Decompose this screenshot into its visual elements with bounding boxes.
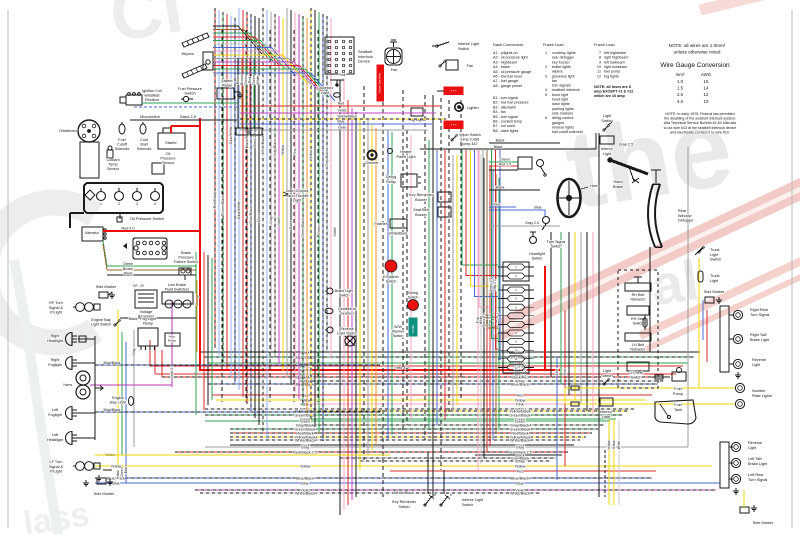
svg-text:Gray: Gray	[516, 445, 524, 449]
svg-text:A2 - oil pressure light: A2 - oil pressure light	[493, 56, 528, 60]
svg-text:Right Tail/: Right Tail/	[750, 333, 768, 337]
svg-text:Green: Green	[317, 225, 321, 235]
svg-text:White/Black: White/Black	[510, 491, 530, 495]
svg-text:Wipers: Wipers	[182, 51, 194, 56]
svg-text:Dash Ground: Dash Ground	[286, 189, 309, 193]
svg-text:Solenoid: Solenoid	[137, 147, 152, 151]
svg-text:Lighter: Lighter	[467, 105, 480, 110]
svg-text:Turn Signal: Turn Signal	[748, 478, 767, 482]
svg-text:Pump: Pump	[673, 392, 683, 396]
svg-text:Pink: Pink	[293, 148, 297, 155]
svg-text:Blue/White: Blue/White	[229, 126, 233, 143]
svg-text:Fan: Fan	[391, 67, 398, 72]
svg-text:14: 14	[704, 86, 709, 91]
svg-text:Brake Light: Brake Light	[335, 289, 354, 293]
svg-text:right highbeam: right highbeam	[604, 56, 628, 60]
svg-text:Blue: Blue	[124, 467, 128, 474]
svg-text:1.5: 1.5	[677, 86, 684, 91]
svg-text:courtesy lights: courtesy lights	[552, 51, 576, 55]
svg-text:Green/Black: Green/Black	[221, 195, 225, 215]
svg-text:Gray: Gray	[269, 216, 273, 224]
svg-text:6: 6	[545, 116, 547, 120]
svg-text:Switch: Switch	[184, 92, 195, 96]
svg-text:parking lights: parking lights	[552, 107, 574, 111]
svg-text:Microswitch: Microswitch	[140, 115, 160, 119]
svg-text:Switch: Switch	[386, 280, 397, 284]
svg-text:Yellow: Yellow	[607, 440, 611, 450]
svg-text:Black: Black	[496, 139, 505, 143]
svg-text:A6 - low fuel level: A6 - low fuel level	[493, 75, 522, 79]
svg-text:Interior: Interior	[600, 410, 613, 414]
svg-text:12: 12	[704, 92, 709, 97]
svg-text:Relay: Relay	[386, 180, 396, 184]
svg-text:Light: Light	[752, 363, 761, 367]
svg-text:Flasher: Flasher	[374, 222, 387, 226]
svg-text:Side Marker: Side Marker	[96, 285, 117, 289]
svg-text:Defog: Defog	[386, 175, 396, 179]
svg-text:Light: Light	[602, 415, 611, 419]
svg-text:Blue/White: Blue/White	[237, 201, 241, 218]
svg-text:Blue: Blue	[534, 206, 541, 210]
svg-text:Switch: Switch	[393, 334, 404, 338]
svg-text:Sensor: Sensor	[162, 161, 175, 165]
svg-text:Headlight: Headlight	[47, 339, 64, 343]
svg-text:which are 16 amp: which are 16 amp	[593, 94, 625, 98]
svg-text:Horns: Horns	[63, 383, 72, 387]
svg-text:Interior Light: Interior Light	[462, 498, 484, 502]
svg-text:Yellow: Yellow	[300, 464, 311, 468]
svg-text:Black: Black	[494, 145, 503, 149]
svg-text:Alfa Technical Service Bulleti: Alfa Technical Service Bulletin 61-62 in…	[664, 121, 737, 125]
svg-text:AWG: AWG	[701, 72, 712, 77]
svg-text:Distributor: Distributor	[59, 128, 77, 133]
svg-text:2.5: 2.5	[677, 92, 684, 97]
svg-text:Cutoff: Cutoff	[117, 143, 128, 147]
svg-text:Brake Light: Brake Light	[750, 338, 770, 342]
svg-text:Relay: Relay	[222, 83, 232, 88]
svg-text:Light: Light	[603, 152, 612, 156]
svg-text:A4 - brake: A4 - brake	[493, 65, 510, 69]
svg-text:jump 3&7: jump 3&7	[461, 142, 478, 146]
svg-text:Gray 2.5: Gray 2.5	[619, 143, 634, 147]
svg-text:E/Flasher: E/Flasher	[383, 275, 400, 279]
svg-text:Horn: Horn	[590, 183, 598, 188]
svg-text:Wire Gauge Conversion: Wire Gauge Conversion	[660, 62, 730, 69]
svg-text:Fuse# Load: Fuse# Load	[594, 42, 615, 47]
svg-text:Glovebox: Glovebox	[317, 86, 333, 90]
svg-text:Tank: Tank	[674, 408, 682, 412]
svg-text:Blue/Black: Blue/Black	[511, 382, 529, 386]
svg-text:al: al	[647, 248, 703, 318]
svg-text:Engine: Engine	[112, 396, 124, 400]
svg-text:Bay Light: Bay Light	[110, 401, 127, 405]
svg-text:Light: Light	[293, 199, 302, 203]
svg-text:defog control: defog control	[552, 116, 574, 120]
svg-text:Dimmer: Dimmer	[365, 161, 379, 165]
svg-text:turn signals: turn signals	[552, 84, 571, 88]
svg-text:Light: Light	[748, 446, 757, 450]
svg-text:Side Marker: Side Marker	[94, 492, 115, 496]
svg-text:7: 7	[599, 51, 601, 55]
svg-text:Switch: Switch	[398, 505, 409, 509]
svg-text:Brake: Brake	[613, 185, 623, 189]
svg-text:Red: Red	[517, 393, 524, 397]
svg-text:Black: Black	[496, 186, 505, 190]
svg-text:Gray/Black: Gray/Black	[273, 139, 277, 157]
svg-text:Light: Light	[603, 114, 612, 118]
svg-text:Switch: Switch	[601, 119, 612, 123]
svg-text:Blue: Blue	[493, 203, 500, 207]
svg-text:the disabling of the seatbelt: the disabling of the seatbelt interlock …	[664, 117, 736, 121]
svg-text:Dash Connectors: Dash Connectors	[493, 42, 523, 47]
svg-text:A3 - highbeam: A3 - highbeam	[493, 60, 517, 64]
svg-text:Pressure: Pressure	[178, 256, 193, 260]
svg-text:Yellow: Yellow	[281, 144, 285, 155]
svg-text:Green/Black: Green/Black	[301, 218, 305, 238]
svg-text:Retractor: Retractor	[630, 348, 646, 352]
svg-text:3: 3	[545, 74, 547, 78]
svg-text:Black 2.5: Black 2.5	[180, 115, 196, 119]
svg-text:Red: Red	[563, 369, 567, 375]
svg-text:Heater: Heater	[400, 150, 412, 154]
svg-text:Right: Right	[51, 334, 61, 338]
svg-text:reverse lights: reverse lights	[552, 125, 574, 129]
svg-text:Black: Black	[289, 220, 293, 229]
svg-text:fuel pump: fuel pump	[604, 70, 620, 74]
svg-text:W/W: W/W	[394, 325, 403, 329]
svg-text:White: White	[515, 459, 525, 463]
svg-text:Seat Belt: Seat Belt	[413, 208, 429, 212]
svg-text:Window: Window	[678, 214, 692, 218]
svg-text:Plate Lights: Plate Lights	[752, 394, 772, 398]
svg-text:B6 - coolant temp: B6 - coolant temp	[493, 120, 522, 124]
svg-text:Switch: Switch	[408, 296, 419, 300]
svg-text:White/Black: White/Black	[389, 232, 408, 236]
svg-text:Washer: Washer	[392, 330, 405, 334]
svg-text:Throttle: Throttle	[412, 324, 415, 333]
svg-text:Turn Signal: Turn Signal	[750, 313, 769, 317]
svg-text:4: 4	[545, 88, 547, 92]
svg-text:Gray: Gray	[301, 445, 309, 449]
svg-text:to cut wire #13 at the seatbel: to cut wire #13 at the seatbelt interloc…	[664, 126, 737, 130]
svg-text:Switch: Switch	[631, 376, 642, 380]
svg-text:Light: Light	[710, 279, 719, 283]
svg-text:Side Marker: Side Marker	[704, 290, 725, 294]
svg-text:Pink: Pink	[301, 402, 308, 406]
svg-text:Green: Green	[500, 158, 510, 162]
svg-text:seatbelt interlock: seatbelt interlock	[552, 88, 580, 92]
svg-text:Blue/Black: Blue/Black	[296, 476, 314, 480]
svg-text:Key Reminder: Key Reminder	[409, 193, 434, 197]
svg-text:2: 2	[118, 202, 120, 206]
svg-text:w/Ballast: w/Ballast	[144, 94, 160, 98]
svg-text:9: 9	[599, 60, 601, 64]
svg-text:Relay: Relay	[168, 339, 176, 343]
svg-text:Panel Light: Panel Light	[397, 155, 417, 159]
svg-text:Light Switch: Light Switch	[337, 332, 357, 336]
svg-text:Green: Green	[123, 262, 133, 266]
svg-text:Gearbox: Gearbox	[340, 312, 354, 316]
svg-text:Right Rear: Right Rear	[750, 308, 769, 312]
svg-text:Sensor: Sensor	[107, 167, 120, 171]
svg-text:and electrically connect it to: and electrically connect it to wire #10.	[670, 130, 730, 134]
svg-text:trunk light: trunk light	[552, 93, 568, 97]
svg-text:rear defogger: rear defogger	[552, 56, 575, 60]
svg-text:Buzzer: Buzzer	[415, 213, 428, 217]
svg-text:Light: Light	[710, 253, 719, 257]
svg-text:White: White	[256, 75, 260, 84]
svg-text:unless otherwise noted: unless otherwise noted	[674, 50, 721, 55]
svg-text:A7 - fuel gauge: A7 - fuel gauge	[493, 79, 518, 83]
svg-text:Switch: Switch	[633, 322, 644, 326]
svg-text:Yellow/Black: Yellow/Black	[337, 115, 357, 119]
svg-text:Fog Light: Fog Light	[140, 317, 157, 321]
svg-text:b: b	[450, 493, 452, 497]
svg-text:Interior: Interior	[601, 147, 614, 151]
svg-text:Retractor: Retractor	[630, 298, 646, 302]
svg-text:Reverse: Reverse	[752, 358, 766, 362]
svg-text:NOTE: all fuses are 8: NOTE: all fuses are 8	[594, 85, 631, 89]
svg-text:Blue: Blue	[301, 481, 309, 485]
svg-text:hood light: hood light	[552, 98, 568, 102]
svg-text:Switch: Switch	[710, 258, 721, 262]
svg-text:White/Black: White/Black	[295, 491, 315, 495]
svg-text:Oil: Oil	[166, 152, 171, 156]
svg-text:Yellow: Yellow	[515, 464, 526, 468]
svg-text:Blue/Black: Blue/Black	[104, 408, 121, 412]
svg-text:Light: Light	[603, 369, 612, 373]
svg-text:Light Switch: Light Switch	[91, 323, 111, 327]
svg-text:A8 - gauge power: A8 - gauge power	[493, 84, 523, 88]
svg-text:2: 2	[545, 65, 547, 69]
svg-text:Pink: Pink	[516, 402, 523, 406]
svg-text:Black: Black	[300, 350, 309, 354]
svg-text:Fasten Seat Belts: Fasten Seat Belts	[377, 72, 381, 93]
svg-text:Defog: Defog	[408, 291, 418, 295]
svg-text:Alternator: Alternator	[85, 231, 100, 235]
svg-text:Brake Light: Brake Light	[748, 462, 768, 466]
svg-text:Coolant: Coolant	[106, 158, 120, 162]
svg-text:b: b	[434, 493, 436, 497]
svg-text:Pink: Pink	[339, 73, 346, 77]
svg-text:fog lights: fog lights	[604, 74, 619, 78]
svg-text:brake lights: brake lights	[552, 65, 571, 69]
svg-text:right lowbeam: right lowbeam	[604, 65, 627, 69]
svg-text:fuel cutoff solenoid: fuel cutoff solenoid	[552, 130, 583, 134]
svg-text:B7 - not used: B7 - not used	[493, 124, 515, 128]
svg-text:Light: Light	[321, 91, 330, 95]
svg-text:gauges: gauges	[552, 121, 564, 125]
svg-text:Switch: Switch	[339, 294, 350, 298]
svg-text:Failure Switch: Failure Switch	[174, 260, 198, 264]
svg-text:Green 2.5: Green 2.5	[497, 313, 501, 328]
svg-text:Left Tail/: Left Tail/	[748, 457, 763, 461]
svg-text:Resistor: Resistor	[145, 98, 160, 102]
svg-text:mm²: mm²	[676, 72, 685, 77]
svg-text:A5 - oil pressure gauge: A5 - oil pressure gauge	[493, 70, 531, 74]
svg-text:Blue/Black: Blue/Black	[511, 476, 529, 480]
svg-text:* * *: * * *	[451, 90, 458, 94]
svg-text:Red 2.5: Red 2.5	[493, 279, 497, 291]
svg-text:Foglight: Foglight	[48, 413, 62, 417]
svg-text:left lowbeam: left lowbeam	[604, 60, 625, 64]
svg-text:Violet: Violet	[338, 109, 347, 113]
svg-text:P/Light: P/Light	[50, 470, 63, 474]
svg-text:Voltage: Voltage	[140, 310, 153, 314]
svg-text:Yellow: Yellow	[309, 149, 313, 160]
svg-text:Fuel Pressure: Fuel Pressure	[178, 87, 202, 91]
svg-text:Blue/Black: Blue/Black	[104, 361, 121, 365]
svg-text:Switch: Switch	[551, 245, 562, 249]
svg-text:Blue: Blue	[555, 369, 559, 376]
svg-text:Yellow: Yellow	[612, 440, 616, 450]
svg-text:Cold: Cold	[140, 138, 148, 142]
svg-text:5: 5	[545, 93, 547, 97]
svg-text:B1 - turn signal: B1 - turn signal	[493, 96, 518, 100]
svg-text:RH Belt: RH Belt	[632, 293, 645, 297]
svg-text:Pressure: Pressure	[160, 157, 175, 161]
svg-text:Red: Red	[338, 102, 345, 106]
svg-text:LF Turn: LF Turn	[49, 460, 62, 464]
svg-text:LH Belt: LH Belt	[632, 343, 644, 347]
svg-text:10: 10	[597, 65, 601, 69]
svg-text:B3 - alternator: B3 - alternator	[493, 105, 517, 109]
svg-text:Headlight: Headlight	[47, 438, 64, 442]
svg-text:Buzzer: Buzzer	[415, 198, 428, 202]
svg-text:key buzzer: key buzzer	[552, 60, 571, 64]
svg-text:Fuel: Fuel	[118, 138, 126, 142]
svg-text:Switch: Switch	[462, 503, 473, 507]
svg-text:Blue: Blue	[516, 481, 524, 485]
svg-text:16: 16	[704, 79, 709, 84]
svg-text:Relay: Relay	[143, 322, 153, 326]
svg-text:B5 - turn signal: B5 - turn signal	[493, 115, 518, 119]
svg-text:Signal &: Signal &	[49, 306, 64, 310]
svg-text:Solenoid: Solenoid	[115, 147, 130, 151]
svg-text:P/Light: P/Light	[50, 311, 63, 315]
svg-text:Gray/Black: Gray/Black	[325, 149, 329, 167]
svg-text:Reverse: Reverse	[340, 327, 354, 331]
svg-text:Violet 2.5: Violet 2.5	[170, 365, 174, 379]
svg-text:dash lights: dash lights	[552, 102, 570, 106]
svg-text:Reverse: Reverse	[748, 441, 762, 445]
svg-text:Trunk: Trunk	[710, 248, 720, 252]
svg-text:Right: Right	[51, 358, 61, 362]
svg-text:White: White	[617, 441, 621, 450]
svg-text:8: 8	[599, 56, 601, 60]
svg-text:Switch: Switch	[601, 374, 612, 378]
svg-text:Temp: Temp	[108, 163, 117, 167]
svg-text:Fluid Switches: Fluid Switches	[165, 288, 190, 292]
svg-text:Side Marker: Side Marker	[753, 521, 774, 525]
svg-text:DF - D+: DF - D+	[133, 284, 144, 288]
svg-text:Red: Red	[517, 469, 524, 473]
svg-text:Start: Start	[140, 143, 149, 147]
svg-text:11: 11	[597, 70, 601, 74]
svg-text:Violet: Violet	[333, 228, 337, 237]
svg-text:Device: Device	[358, 59, 370, 64]
svg-text:Engine Bay: Engine Bay	[91, 318, 111, 322]
svg-text:Starter: Starter	[165, 140, 177, 145]
svg-text:Hand: Hand	[613, 180, 622, 184]
svg-text:B2 - low fuel pressure: B2 - low fuel pressure	[493, 101, 529, 105]
svg-text:glovebox light: glovebox light	[552, 74, 575, 78]
svg-text:Blue: Blue	[112, 481, 120, 485]
svg-text:Blue: Blue	[337, 120, 344, 124]
svg-text:Seatbelt at: Seatbelt at	[338, 307, 356, 311]
svg-text:Black/Red: Black/Red	[245, 132, 249, 148]
svg-text:Gray: Gray	[132, 348, 136, 355]
svg-text:Fuel: Fuel	[674, 403, 682, 407]
svg-text:White/Black: White/Black	[261, 135, 265, 154]
svg-text:1: 1	[545, 51, 547, 55]
svg-text:1: 1	[100, 202, 102, 206]
svg-text:B8 - dash lights: B8 - dash lights	[493, 129, 519, 133]
svg-text:Trunk: Trunk	[710, 274, 720, 278]
svg-text:Left: Left	[52, 433, 59, 437]
svg-text:Left Rear: Left Rear	[748, 473, 764, 477]
svg-text:Defogger: Defogger	[678, 219, 694, 223]
svg-text:Brake: Brake	[181, 251, 191, 255]
svg-text:10: 10	[704, 99, 709, 104]
svg-text:Gray 2.5: Gray 2.5	[525, 221, 539, 225]
svg-text:side markers: side markers	[552, 111, 573, 115]
svg-text:Black: Black	[124, 272, 133, 276]
svg-text:Headlight: Headlight	[529, 252, 545, 256]
svg-text:Fuse# Load: Fuse# Load	[543, 42, 564, 47]
svg-text:Number: Number	[752, 389, 766, 393]
svg-text:White/Black: White/Black	[394, 491, 414, 495]
svg-text:Black: Black	[257, 213, 261, 222]
svg-text:Low Brake: Low Brake	[168, 283, 186, 287]
svg-text:Key Reminder: Key Reminder	[392, 500, 417, 504]
svg-text:4: 4	[154, 202, 156, 206]
svg-text:Ignition Coil: Ignition Coil	[142, 89, 162, 93]
svg-text:Signal &: Signal &	[49, 465, 64, 469]
svg-text:4.0: 4.0	[677, 99, 684, 104]
svg-text:* * *: * * *	[451, 124, 458, 128]
svg-text:B4 - fan: B4 - fan	[493, 110, 506, 114]
svg-text:Left: Left	[52, 408, 59, 412]
svg-text:Red/Black 2.5: Red/Black 2.5	[293, 450, 317, 454]
svg-text:the: the	[558, 85, 740, 232]
svg-text:NOTE: all wires are 1.0mm²: NOTE: all wires are 1.0mm²	[669, 43, 726, 48]
svg-text:12: 12	[597, 74, 601, 78]
svg-text:wipers: wipers	[552, 70, 563, 74]
svg-text:A1 - p/lights on: A1 - p/lights on	[493, 51, 518, 55]
svg-text:Fuel: Fuel	[674, 387, 682, 391]
svg-text:Switch: Switch	[532, 257, 543, 261]
svg-text:Black: Black	[129, 317, 138, 321]
svg-text:1.0: 1.0	[677, 79, 684, 84]
svg-text:Rear: Rear	[678, 209, 687, 213]
svg-text:Hand Throttle: Hand Throttle	[286, 194, 309, 198]
svg-text:3: 3	[136, 202, 138, 206]
svg-text:White/Black: White/Black	[295, 438, 315, 442]
svg-text:Violet: Violet	[277, 218, 281, 227]
svg-text:Green/Black: Green/Black	[295, 355, 316, 359]
svg-text:Foglight: Foglight	[48, 363, 62, 367]
svg-text:jump 2,4&6: jump 2,4&6	[460, 138, 480, 142]
svg-text:White/Black: White/Black	[510, 438, 530, 442]
svg-text:Red/Black: Red/Black	[213, 192, 217, 209]
svg-text:Gray: Gray	[338, 126, 346, 130]
svg-text:left highbeam: left highbeam	[604, 51, 626, 55]
svg-text:Oil Pressure Switch: Oil Pressure Switch	[130, 216, 164, 221]
svg-text:Turn Signal: Turn Signal	[547, 240, 566, 244]
svg-text:fan: fan	[552, 79, 557, 83]
svg-text:Wiper Switch: Wiper Switch	[459, 133, 481, 137]
